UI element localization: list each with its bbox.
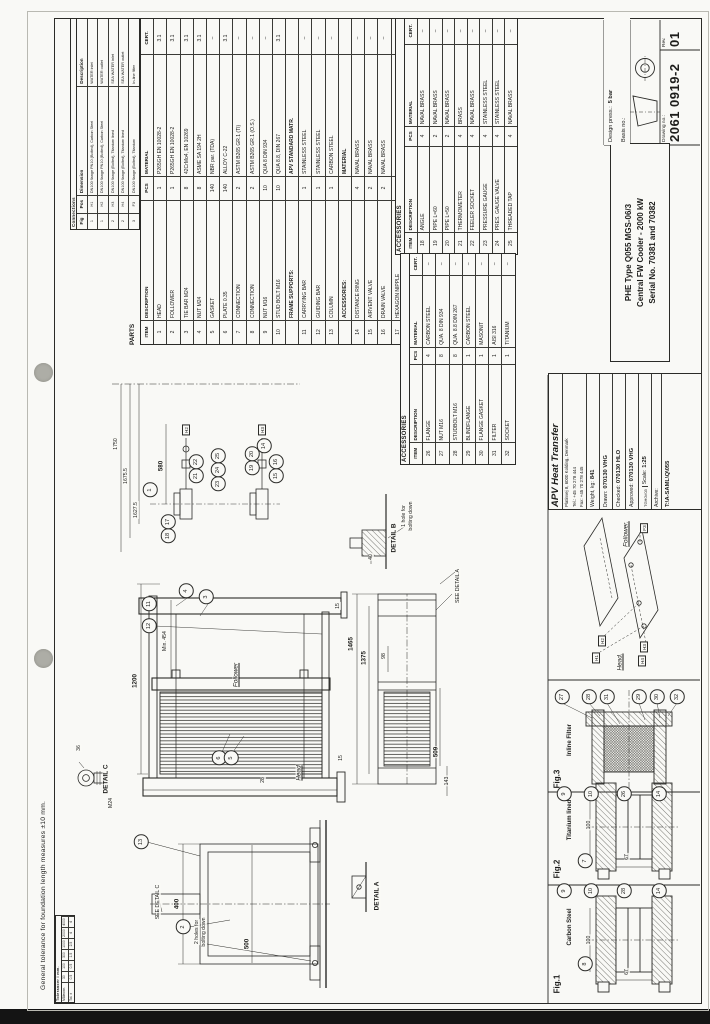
item-balloon: 3 <box>199 590 214 605</box>
dim-label: 143 <box>444 776 450 787</box>
table-cell: In-line filter <box>129 19 138 86</box>
table-cell: STUDBOLT M16 <box>450 364 462 442</box>
table-cell: 4 <box>352 176 364 200</box>
table-row: 2FOLLOWER1P265GH EN 10028-23.1 <box>167 19 180 344</box>
table-cell: 1 <box>167 176 179 200</box>
table-cell: ITEM <box>410 442 422 464</box>
table-cell: CERT. <box>141 23 153 54</box>
table-cell: THERMOMETER <box>455 146 467 232</box>
table-cell: 1000 <box>62 938 68 949</box>
table-row: 14DISTANCE RING4NAVAL BRASS– <box>352 19 365 344</box>
table-cell: 300 <box>62 949 68 960</box>
table-cell: 14 <box>352 320 364 344</box>
table-cell: 13 <box>326 320 338 344</box>
table-cell: PIPE L=50 <box>443 146 455 232</box>
table-cell: CARBON STEEL <box>463 275 475 347</box>
dim-label: SEE DETAIL C <box>155 884 161 921</box>
table-cell: SOCKET <box>502 364 514 442</box>
table-cell: QUA. 8 DIN 934 <box>436 275 448 347</box>
item-balloon: 15 <box>269 469 284 484</box>
table-cell: 19 <box>430 232 442 254</box>
table-row: 1H1DN100 flange PN10 (Bolted), Carbon St… <box>88 19 98 229</box>
table-cell: APV STANDARD MATR. <box>286 54 298 176</box>
connection-ref-box: H2 <box>182 425 190 436</box>
item-balloon: 9 <box>557 787 572 802</box>
table-cell: 18 <box>418 232 430 254</box>
dim-label: Min. 454 <box>162 630 168 652</box>
table-row: 13COLUMN1CARBON STEEL– <box>326 19 339 344</box>
table-row: 29BLINDFLANGE1CARBON STEEL– <box>463 254 476 464</box>
table-cell: H2 <box>98 195 107 213</box>
table-cell: MASONIT <box>476 275 488 347</box>
archive-path-row: T:\A-SAML\Q\055 <box>662 374 674 509</box>
dim-label: 67 <box>624 968 630 976</box>
table-cell: NAVAL BRASS <box>378 54 390 176</box>
table-cell: H3 <box>109 195 118 213</box>
table-cell: 23 <box>480 232 492 254</box>
table-row: 6PLATE 0.35140ALLOY C-223.1 <box>220 19 233 344</box>
table-row: 22FEELER SOCKET4NAVAL BRASS– <box>468 19 481 254</box>
table-cell: 1 <box>154 320 166 344</box>
table-cell: ITEM <box>141 320 153 344</box>
table-cell: 100 <box>62 960 68 971</box>
table-cell: STAINLESS STEEL <box>480 44 492 127</box>
table-cell: – <box>352 23 364 54</box>
table-row: FRAME SUPPORTS:APV STANDARD MATR. <box>286 19 299 344</box>
table-row: ACCESSORIES:MATERIAL <box>339 19 352 344</box>
design-pressure-cell: Design press.:5 bar <box>604 14 617 145</box>
connection-ref-box: F3 <box>640 523 648 533</box>
product-line-1: PHE Type Q055 MGS-06/3 <box>624 144 633 361</box>
table-cell: 2.5 <box>69 938 75 949</box>
dim-label: Head. <box>617 652 624 671</box>
dim-label: DETAIL B <box>391 523 398 554</box>
table-cell: PCS <box>141 176 153 200</box>
item-balloon: 1 <box>143 483 158 498</box>
table-cell: 28 <box>450 442 462 464</box>
table-cell: DESCRIPTION <box>141 200 153 320</box>
table-cell: BRASS <box>455 44 467 127</box>
table-cell: 1 <box>88 213 97 229</box>
table-cell: 3.1 <box>194 23 206 54</box>
table-cell: CARBON STEEL <box>423 275 435 347</box>
table-cell: Tol. ± <box>69 982 75 1002</box>
table-cell: – <box>468 19 480 44</box>
parts-table: ITEMDESCRIPTIONPCSMATERIALCERT.1HEAD1P26… <box>140 18 405 345</box>
table-cell: SEA WATER inlet <box>109 19 118 86</box>
table-cell: 29 <box>463 442 475 464</box>
table-cell: ASTM B265 GR.1 (TI) <box>233 54 245 176</box>
item-balloon: 10 <box>584 787 599 802</box>
table-cell: 2 <box>247 176 259 200</box>
dim-label: 100 <box>586 820 592 831</box>
table-cell: – <box>260 23 272 54</box>
parts-table-title: PARTS <box>129 324 136 345</box>
table-cell: Dimension <box>77 86 86 195</box>
dim-label: 1675.5 <box>123 467 129 485</box>
table-cell: 4 <box>505 126 517 146</box>
table-cell: CARBON STEEL <box>326 54 338 176</box>
table-cell: 31 <box>489 442 501 464</box>
table-row: 21THERMOMETER4BRASS– <box>455 19 468 254</box>
table-row: 1HEAD1P265GH EN 10028-23.1 <box>154 19 167 344</box>
dim-label: bolting down <box>408 500 414 531</box>
table-cell: 2 <box>443 126 455 146</box>
dim-label: 1750 <box>113 437 119 451</box>
product-line-3: Serial No. 70381 and 70382 <box>648 144 657 361</box>
revision-cell: Rev. 01 <box>662 20 682 47</box>
table-cell: 3 <box>181 320 193 344</box>
table-row: 32SOCKET1TITANIUM– <box>502 254 514 464</box>
table-cell: P265GH EN 10028-2 <box>154 54 166 176</box>
table-cell: FLANGE GASKET <box>476 364 488 442</box>
dim-label: 1 hole for <box>401 504 407 528</box>
dim-label: 67 <box>624 853 630 861</box>
table-cell: MATERIAL <box>410 275 422 347</box>
item-balloon: 18 <box>161 529 176 544</box>
dim-label: DETAIL A <box>374 881 381 912</box>
dim-label: bolting down <box>201 916 207 947</box>
table-cell: H4 <box>119 195 128 213</box>
table-cell: – <box>502 254 514 275</box>
table-cell: 1 <box>326 176 338 200</box>
table-cell: NAVAL BRASS <box>505 44 517 127</box>
checked-row: Checked:070130 HLO <box>613 374 626 509</box>
table-cell: 16 <box>378 320 390 344</box>
table-cell: 8 <box>181 176 193 200</box>
table-row: Måleomr.30100300100020004000 <box>62 916 69 1002</box>
table-cell: ANGLE <box>418 146 430 232</box>
table-cell: – <box>463 254 475 275</box>
table-cell: Pos <box>77 195 86 213</box>
connection-ref-box: H3 <box>640 642 648 653</box>
table-cell: TITANIUM <box>502 275 514 347</box>
accessories-table-1: ACCESSORIES ITEMDESCRIPTIONPCSMATERIALCE… <box>395 18 518 255</box>
table-cell: 4 <box>418 126 430 146</box>
table-cell: COLUMN <box>326 200 338 320</box>
dim-label: 2 holes for <box>194 919 200 945</box>
table-row: Tol. ±0.50.51.52.544 <box>69 916 75 1002</box>
company-title-block: APV Heat Transfer Platinvej 8, 6000 Kold… <box>548 373 702 510</box>
table-cell: 21 <box>455 232 467 254</box>
table-cell: 3.1 <box>167 23 179 54</box>
table-cell: CONNECTION <box>233 200 245 320</box>
table-row: 8CONNECTION2ASTM B265 GR.1 (O.S.)– <box>247 19 260 344</box>
table-cell: DESCRIPTION <box>410 364 422 442</box>
dim-label: 400 <box>174 898 181 910</box>
table-cell: 2 <box>167 320 179 344</box>
table-cell: MATERIAL <box>405 44 417 127</box>
table-cell: PCS <box>405 126 417 146</box>
dim-label: 500 <box>244 938 251 950</box>
item-balloon: 13 <box>134 835 149 850</box>
table-cell: DISTANCE RING <box>352 200 364 320</box>
table-cell: 11 <box>299 320 311 344</box>
company-fax: Fax: +45 70 278 445 <box>578 374 587 509</box>
dim-label: Fig.1 <box>553 974 562 995</box>
table-row: 9NUT M1610QUA 8 DIN 934– <box>260 19 273 344</box>
table-cell: DN100 flange PN10 (Bolted), Carbon Steel <box>88 86 97 195</box>
connection-ref-box: H2 <box>598 636 606 647</box>
table-row: 16DRAIN VALVE2NAVAL BRASS– <box>378 19 391 344</box>
item-balloon: 14 <box>652 787 667 802</box>
table-cell: – <box>436 254 448 275</box>
table-cell: P265GH EN 10028-2 <box>167 54 179 176</box>
table-row: 20PIPE L=502NAVAL BRASS– <box>443 19 456 254</box>
table-cell: 4000 <box>62 916 68 927</box>
table-cell: MATERIAL <box>141 54 153 176</box>
company-address: Platinvej 8, 6000 Kolding, Denmark <box>563 374 571 509</box>
table-cell: Description <box>77 19 86 86</box>
table-row: 24PRES. GAUGE VALVE4STAINLESS STEEL– <box>493 19 506 254</box>
table-cell: – <box>299 23 311 54</box>
table-cell: 8 <box>194 176 206 200</box>
table-cell: CONNECTION <box>247 200 259 320</box>
table-cell: 8 <box>436 347 448 365</box>
item-balloon: 19 <box>245 461 260 476</box>
item-balloon: 10 <box>584 884 599 899</box>
table-cell: Måleomr. <box>62 982 68 1002</box>
table-cell: 20 <box>443 232 455 254</box>
table-cell: – <box>207 23 219 54</box>
table-cell: – <box>423 254 435 275</box>
dim-label: 36 <box>76 744 82 752</box>
company-tel: Tel.: +45 70 278 444 <box>571 374 579 509</box>
dim-label: 509 <box>433 746 440 758</box>
table-cell: 1.5 <box>69 949 75 960</box>
table-cell: – <box>489 254 501 275</box>
table-cell: – <box>443 19 455 44</box>
item-balloon: 14 <box>652 884 667 899</box>
table-row: 7CONNECTION2ASTM B265 GR.1 (TI)– <box>233 19 246 344</box>
dim-label: 1627.5 <box>133 501 139 519</box>
table-cell: – <box>476 254 488 275</box>
table-cell: – <box>493 19 505 44</box>
dim-label: Head <box>296 764 303 781</box>
table-cell: 4 <box>468 126 480 146</box>
connection-ref-box: H4 <box>638 656 646 667</box>
basis-no-cell: Basis no.: <box>617 14 630 145</box>
table-cell: 3.1 <box>181 23 193 54</box>
table-cell <box>339 320 351 344</box>
table-cell <box>286 320 298 344</box>
table-cell: QUA. 8.8 DIN 267 <box>450 275 462 347</box>
dim-label: 580 <box>158 460 165 472</box>
item-balloon: 12 <box>142 619 157 634</box>
table-cell: 2 <box>430 126 442 146</box>
table-cell: 1 <box>502 347 514 365</box>
item-balloon: 32 <box>670 690 685 705</box>
weight-row: Weight, kg:841 <box>587 374 600 509</box>
table-cell: DN100 flange (Bolted), Titanium lined <box>109 86 118 195</box>
table-cell: 8 <box>247 320 259 344</box>
item-balloon: 26 <box>617 787 632 802</box>
dim-label: 15 <box>338 754 344 762</box>
table-cell: DN100 flange (Bolted), Titanium lined <box>119 86 128 195</box>
dim-label: Follower <box>233 662 240 688</box>
dim-label: DETAIL C <box>103 764 110 795</box>
scale-row: TGH0V03Scale:1:25 <box>639 374 652 509</box>
table-cell <box>286 23 298 54</box>
table-cell: ALLOY C-22 <box>220 54 232 176</box>
dim-label: 15 <box>335 602 341 610</box>
table-cell: STUD BOLT M16 <box>273 200 285 320</box>
table-cell: CERT. <box>410 254 422 275</box>
drawing-sheet: General tolerance for foundation length … <box>0 0 710 1024</box>
table-cell: 6 <box>220 320 232 344</box>
item-balloon: 21 <box>189 469 204 484</box>
table-cell: FOLLOWER <box>167 200 179 320</box>
table-cell: NAVAL BRASS <box>365 54 377 176</box>
dim-label: SEE DETAIL A <box>455 568 461 604</box>
item-balloon: 27 <box>555 690 570 705</box>
item-balloon: 14 <box>257 439 272 454</box>
table-cell: 140 <box>207 176 219 200</box>
table-cell: PIPE L=60 <box>430 146 442 232</box>
item-balloon: 16 <box>269 455 284 470</box>
table-cell: 15 <box>365 320 377 344</box>
table-title: ACCESSORIES <box>401 254 410 464</box>
table-cell: ITEM <box>405 232 417 254</box>
table-cell: NUT M24 <box>194 200 206 320</box>
table-cell: AISI 316 <box>489 275 501 347</box>
dim-label: 40 <box>368 553 374 561</box>
table-cell <box>286 176 298 200</box>
table-cell: 10 <box>273 320 285 344</box>
table-cell: 3 <box>129 213 138 229</box>
table-cell: 4 <box>493 126 505 146</box>
item-balloon: 28 <box>617 884 632 899</box>
table-cell: 4 <box>455 126 467 146</box>
item-balloon: 22 <box>189 455 204 470</box>
table-title: ACCESSORIES <box>396 19 405 254</box>
scanned-drawing-page: { "sheet": { "tolerance_note": "General … <box>0 0 710 1024</box>
table-row: 11CARRYING BAR1STAINLESS STEEL– <box>299 19 312 344</box>
drawing-no-cell: Drawing no.: 2061 0919-2 <box>662 52 682 142</box>
approved-row: Approved:070130 VHG <box>626 374 639 509</box>
table-cell: FRAME SUPPORTS: <box>286 200 298 320</box>
table-cell: 30 <box>62 971 68 982</box>
table-cell: 3.1 <box>154 23 166 54</box>
table-cell: H1 <box>88 195 97 213</box>
dim-label: Fig.2 <box>553 859 562 880</box>
item-balloon: 17 <box>161 515 176 530</box>
table-cell: CARRYING BAR <box>299 200 311 320</box>
table-cell: PCS <box>410 347 422 365</box>
dim-label: 100 <box>586 935 592 946</box>
table-cell: FILTER <box>489 364 501 442</box>
table-cell: NUT M16 <box>260 200 272 320</box>
tolerance-mini-table: Tolerancer i mm. Måleomr.301003001000200… <box>55 915 75 1003</box>
item-balloon: 2 <box>176 920 191 935</box>
table-cell: ACCESSORIES: <box>339 200 351 320</box>
table-cell: – <box>233 23 245 54</box>
archive-row: Archive: <box>652 374 662 509</box>
table-cell: 4 <box>480 126 492 146</box>
table-cell: Fig <box>77 213 86 229</box>
table-cell: 1 <box>154 176 166 200</box>
table-row: 2H4DN100 flange (Bolted), Titanium lined… <box>119 19 129 229</box>
table-cell: – <box>418 19 430 44</box>
table-cell: 9 <box>260 320 272 344</box>
table-cell: 1 <box>312 176 324 200</box>
table-cell: NAVAL BRASS <box>468 44 480 127</box>
table-row: 12GUIDING BAR1STAINLESS STEEL– <box>312 19 325 344</box>
table-cell: 10 <box>260 176 272 200</box>
table-header-row: ITEMDESCRIPTIONPCSMATERIALCERT. <box>141 19 154 344</box>
table-cell <box>339 23 351 54</box>
item-balloon: 4 <box>179 584 194 599</box>
table-cell: WATER outlet <box>98 19 107 86</box>
table-cell: TIE BAR M24 <box>181 200 193 320</box>
table-row: 25THREADED TAP4NAVAL BRASS– <box>505 19 517 254</box>
table-cell: 2 <box>233 176 245 200</box>
item-balloon: 5 <box>224 751 239 766</box>
item-balloon: 24 <box>211 463 226 478</box>
table-cell: 0.5 <box>69 960 75 971</box>
table-row: 18ANGLE4NAVAL BRASS– <box>418 19 431 254</box>
table-row: 3F3DN100 flange (Bolted), TitaniumIn-lin… <box>129 19 138 229</box>
table-cell: HEAD <box>154 200 166 320</box>
table-cell: PRESSURE GAUGE <box>480 146 492 232</box>
table-row: 4NUT M248ASME SA 194 2H3.1 <box>194 19 207 344</box>
dim-label: 1200 <box>132 673 139 689</box>
table-row: 28STUDBOLT M168QUA. 8.8 DIN 267– <box>450 254 463 464</box>
table-cell: ASTM B265 GR.1 (O.S.) <box>247 54 259 176</box>
table-cell: – <box>326 23 338 54</box>
table-cell: 4 <box>194 320 206 344</box>
item-balloon: 29 <box>632 690 647 705</box>
table-header-row: ITEMDESCRIPTIONPCSMATERIALCERT. <box>405 19 418 254</box>
table-cell: PLATE 0.35 <box>220 200 232 320</box>
table-cell: 5 <box>207 320 219 344</box>
table-row: 3TIE BAR M24842CrMo4, EN 102693.1 <box>181 19 194 344</box>
table-cell: STAINLESS STEEL <box>299 54 311 176</box>
dim-label: 28 <box>260 776 266 784</box>
table-cell: 12 <box>312 320 324 344</box>
table-cell: QUA 8 DIN 934 <box>260 54 272 176</box>
item-balloon: 25 <box>211 449 226 464</box>
table-cell: BLINDFLANGE <box>463 364 475 442</box>
table-cell: NBR par. (TDA) <box>207 54 219 176</box>
table-cell: DESCRIPTION <box>405 146 417 232</box>
item-balloon: 7 <box>578 854 593 869</box>
company-name: APV Heat Transfer <box>549 374 563 509</box>
dim-label: Inline Filter <box>567 723 573 757</box>
table-cell: GASKET <box>207 200 219 320</box>
table-cell: 32 <box>502 442 514 464</box>
table-cell: CERT. <box>405 19 417 44</box>
table-cell: THREADED TAP <box>505 146 517 232</box>
drawn-row: Drawn:070130 VHG <box>600 374 613 509</box>
dim-label: Titanium lined <box>567 799 573 842</box>
table-cell: 30 <box>476 442 488 464</box>
table-cell: 3.1 <box>273 23 285 54</box>
table-row: 10STUD BOLT M1610QUA 8.8, DIN 2673.1 <box>273 19 286 344</box>
dim-label: Carbon Steel <box>567 907 573 946</box>
table-cell: 1 <box>476 347 488 365</box>
table-cell: – <box>312 23 324 54</box>
table-cell: PRES. GAUGE VALVE <box>493 146 505 232</box>
table-cell: WATER inlet <box>88 19 97 86</box>
table-cell: 2 <box>365 176 377 200</box>
table-cell: 27 <box>436 442 448 464</box>
table-cell: 42CrMo4, EN 10269 <box>181 54 193 176</box>
table-cell: 25 <box>505 232 517 254</box>
item-balloon: 8 <box>578 957 593 972</box>
table-cell: – <box>505 19 517 44</box>
table-cell: – <box>455 19 467 44</box>
